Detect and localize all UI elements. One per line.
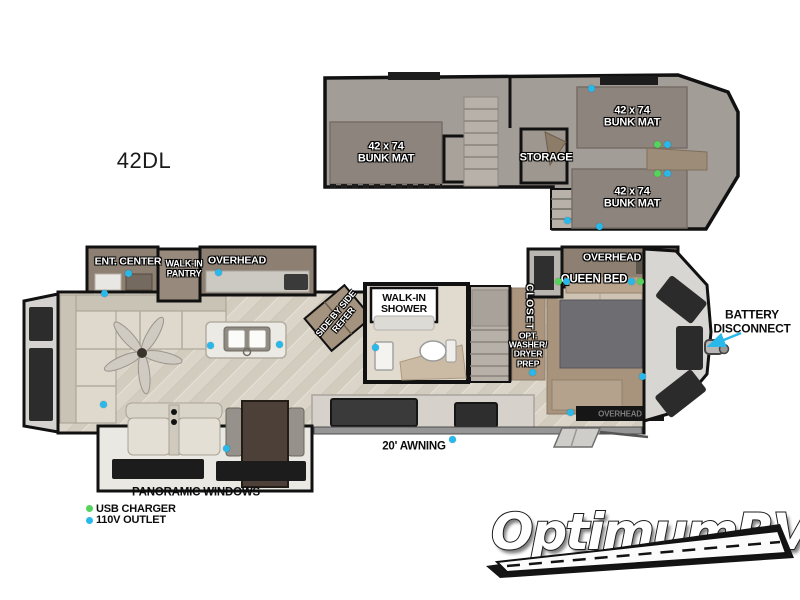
kitchen-island	[206, 322, 286, 358]
110v-outlet-dot	[564, 217, 571, 224]
110v-outlet-dot	[101, 290, 108, 297]
legend: USB CHARGER 110V OUTLET	[86, 503, 176, 526]
110v-outlet-dot	[588, 85, 595, 92]
110v-outlet-dot	[639, 373, 646, 380]
110v-outlet-dot	[100, 401, 107, 408]
110v-outlet-dot	[207, 342, 214, 349]
110v-outlet-dot	[276, 341, 283, 348]
bunk-mat-bottom-right	[572, 169, 687, 228]
toilet	[420, 340, 456, 362]
110v-outlet-dot	[125, 270, 132, 277]
cooktop	[331, 399, 417, 426]
110v-outlet-dot	[563, 278, 570, 285]
110v-outlet-dot	[215, 269, 222, 276]
main-stairs	[470, 286, 510, 382]
110v-outlet-dot	[567, 409, 574, 416]
ent-center-cabinet	[87, 247, 158, 292]
bathroom	[365, 284, 468, 382]
110v-outlet-dot	[664, 141, 671, 148]
rear-cap	[24, 294, 58, 432]
hutch-sink	[284, 274, 308, 290]
loft-roof-vent-left	[388, 72, 440, 80]
bunk-mat-top-right	[577, 87, 687, 148]
storage-closet	[521, 129, 567, 183]
loft-stairs	[464, 97, 498, 186]
pantry-cabinet	[158, 249, 200, 301]
usb-charger-dot	[654, 141, 661, 148]
usb-charger-dot	[637, 278, 644, 285]
loft-roof-vent-right	[600, 76, 658, 85]
legend-usb-charger: USB CHARGER	[86, 503, 176, 515]
bedroom-wardrobe	[528, 249, 562, 297]
110v-outlet-icon	[86, 517, 93, 524]
kitchen-sink	[455, 403, 497, 427]
loft-floorplan	[325, 72, 738, 229]
queen-bed	[547, 287, 653, 414]
theater-seats	[126, 403, 222, 455]
bottom-slide	[98, 401, 312, 491]
110v-outlet-dot	[449, 436, 456, 443]
cap-window-middle	[676, 326, 703, 370]
loft-nose-shelf	[647, 148, 707, 170]
legend-110v-outlet: 110V OUTLET	[86, 515, 176, 527]
front-cap	[644, 249, 729, 421]
110v-outlet-dot	[372, 344, 379, 351]
panoramic-window-right	[216, 461, 306, 481]
rear-window-bottom	[29, 348, 53, 421]
bed-mattress	[560, 300, 642, 368]
bunk-mat-left	[330, 122, 442, 184]
rear-window-top	[29, 307, 53, 341]
panoramic-window-left	[112, 459, 204, 479]
bed-bench	[552, 380, 622, 410]
110v-outlet-dot	[664, 170, 671, 177]
usb-charger-icon	[86, 505, 93, 512]
watermark-logo: OptimumRV OptimumRV	[486, 503, 800, 578]
shower	[371, 288, 437, 330]
closet-area	[512, 288, 545, 380]
110v-outlet-dot	[223, 445, 230, 452]
kitchen-counter	[312, 395, 534, 428]
floorplan-canvas: OptimumRV OptimumRV 42DL 42 x 74BUNK MAT…	[0, 0, 800, 600]
110v-outlet-dot	[529, 369, 536, 376]
110v-outlet-dot	[596, 223, 603, 230]
110v-outlet-dot	[628, 278, 635, 285]
usb-charger-dot	[555, 278, 562, 285]
usb-charger-dot	[654, 170, 661, 177]
